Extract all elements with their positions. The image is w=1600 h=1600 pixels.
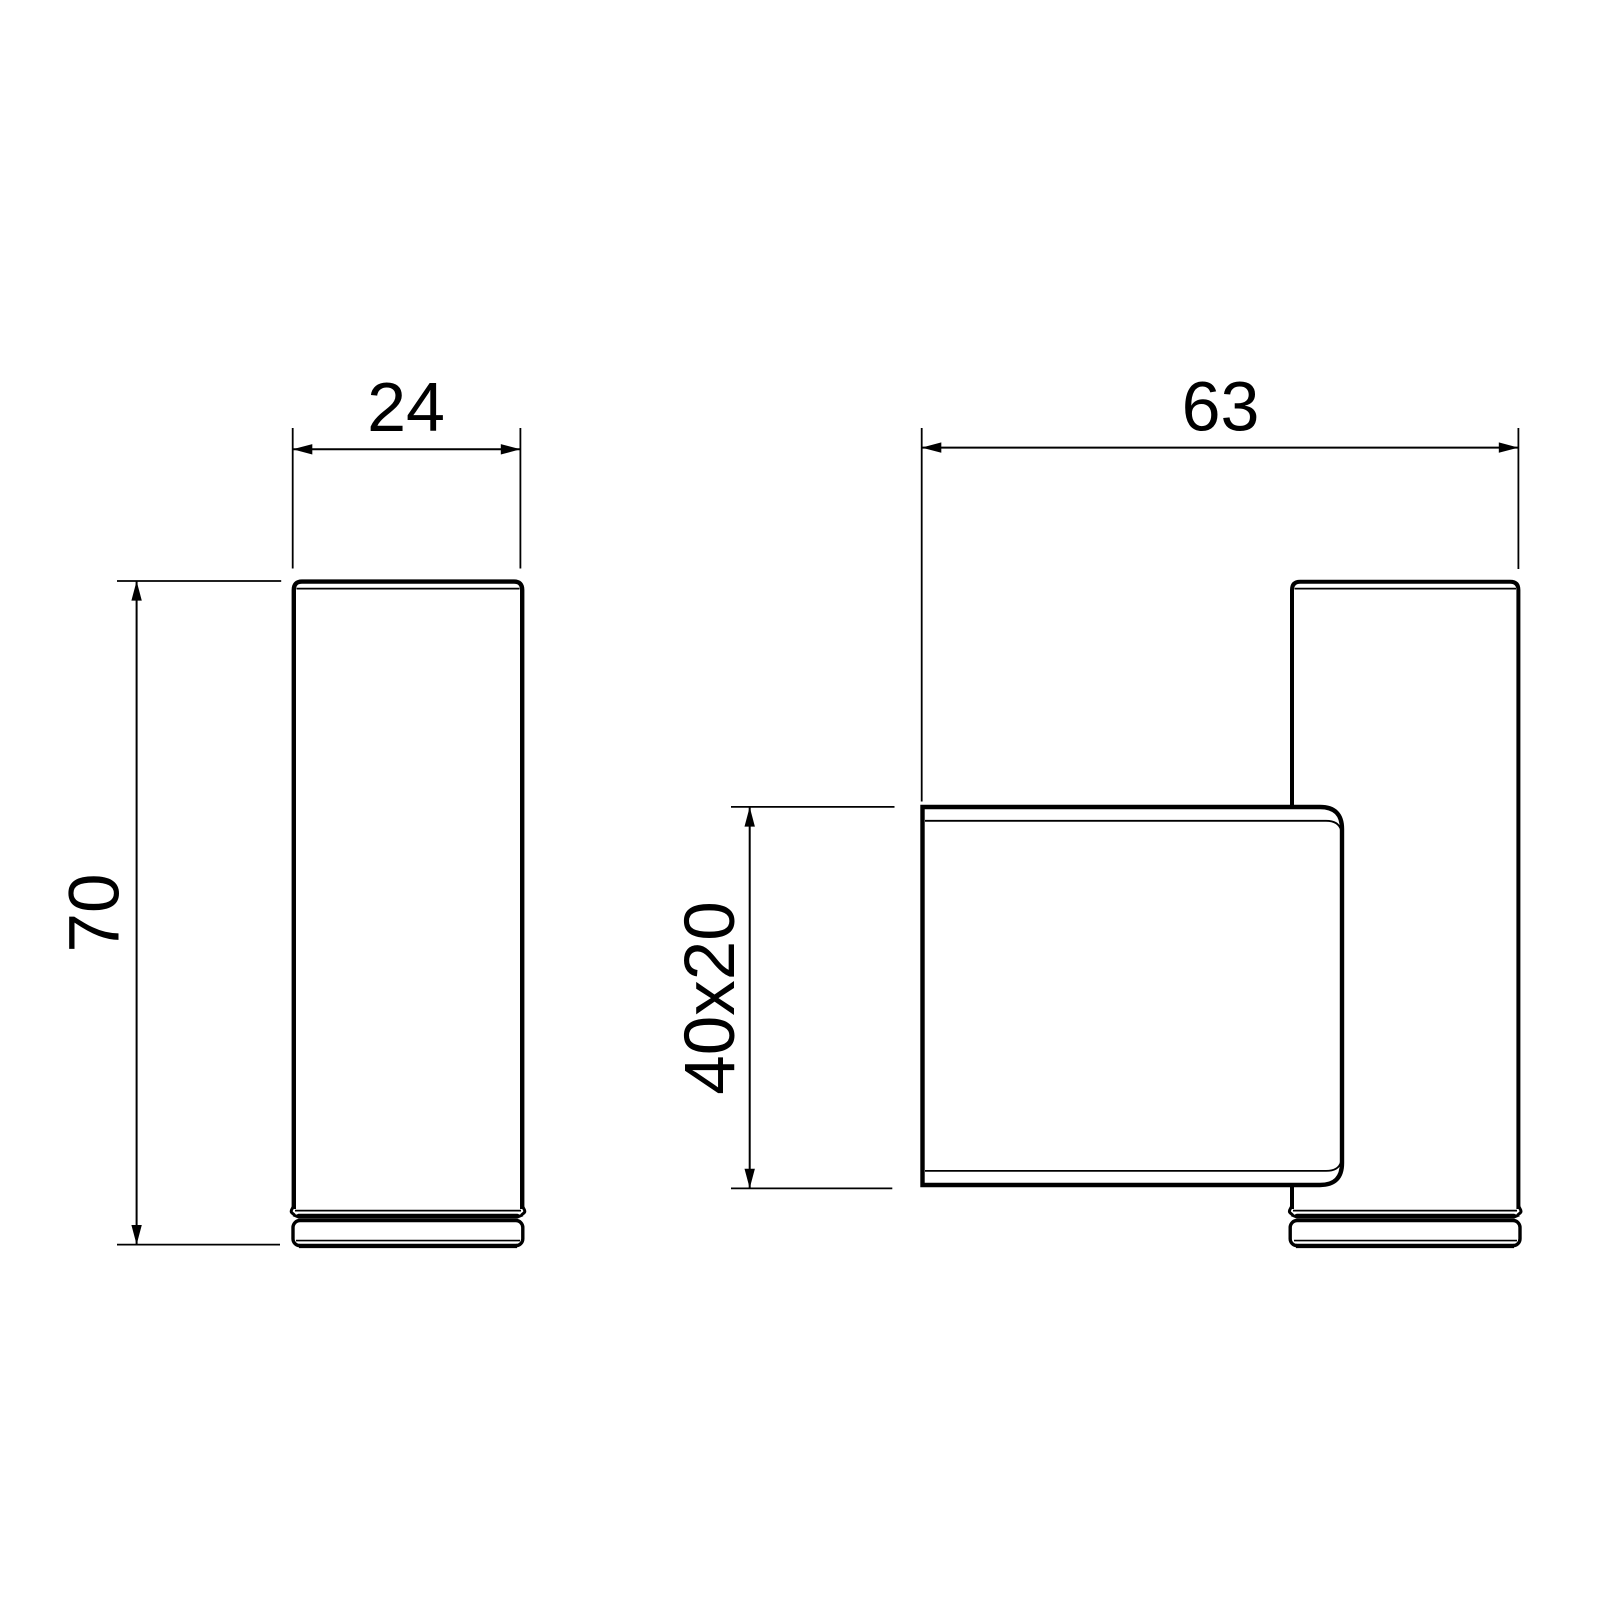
svg-text:70: 70 xyxy=(56,874,135,953)
svg-text:24: 24 xyxy=(367,368,445,446)
svg-text:63: 63 xyxy=(1182,368,1260,446)
svg-text:40x20: 40x20 xyxy=(671,901,750,1094)
